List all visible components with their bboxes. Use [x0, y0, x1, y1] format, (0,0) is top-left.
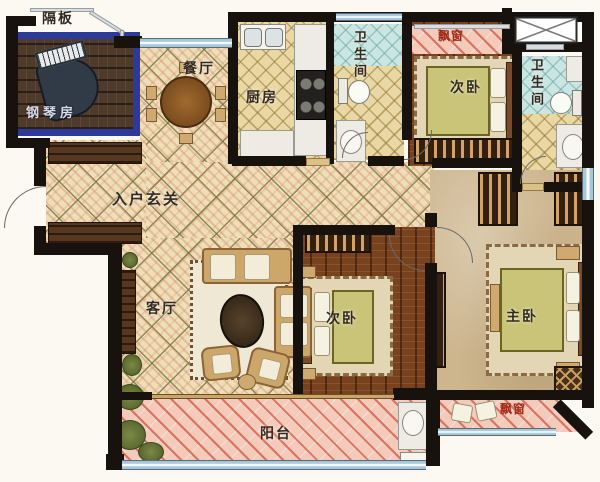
wall	[6, 16, 36, 26]
bay-window-sill	[438, 428, 556, 436]
master-bench	[490, 284, 500, 332]
bedroom1-bed-icon	[426, 66, 490, 136]
label-kitchen: 厨房	[246, 90, 278, 106]
label-balcony: 阳台	[260, 426, 292, 442]
wall	[582, 12, 594, 168]
wall	[393, 388, 429, 400]
doorway-threshold	[522, 183, 544, 191]
wall	[293, 225, 303, 398]
pillow-icon	[451, 402, 474, 423]
label-living-room: 客厅	[146, 301, 178, 317]
window	[582, 168, 594, 200]
label-bathroom-2: 卫生间	[527, 58, 542, 120]
stove-icon	[296, 70, 326, 120]
entry-cabinet-bottom	[48, 222, 142, 244]
wall	[368, 156, 404, 166]
dining-chair	[215, 86, 226, 100]
label-bathroom-1: 卫生间	[350, 30, 365, 96]
wall	[582, 200, 594, 408]
side-table	[238, 374, 256, 390]
wall	[6, 138, 50, 148]
label-bay-window-bottom: 飘窗	[500, 403, 526, 417]
sofa-cushion	[210, 254, 236, 280]
toilet-tank-icon	[338, 78, 348, 104]
label-bedroom-second-top: 次卧	[450, 80, 482, 96]
toilet-icon	[550, 92, 572, 114]
bath2-basin-icon	[562, 134, 584, 160]
window	[140, 38, 232, 48]
label-master-bedroom: 主卧	[506, 309, 538, 325]
toilet-tank-icon	[572, 90, 582, 116]
wall	[34, 148, 46, 186]
wall	[432, 158, 520, 168]
elevator-icon	[514, 16, 578, 44]
bath1-shower-tile	[334, 24, 404, 66]
wall	[326, 20, 334, 164]
plant-icon	[138, 442, 164, 462]
plant-icon	[122, 252, 138, 268]
wall	[426, 390, 586, 400]
label-entry-foyer: 入户玄关	[112, 191, 180, 208]
sofa-cushion	[244, 254, 270, 280]
armchair-icon	[200, 344, 241, 382]
balcony-window	[122, 460, 426, 470]
elevator-door	[526, 44, 564, 50]
wall	[228, 12, 238, 164]
armchair-cushion	[258, 357, 282, 381]
label-piano-room: 钢琴房	[26, 107, 77, 122]
floor-plan: 隔板 钢琴房 餐厅 厨房 卫生间 飘窗 次卧 卫生间 入户玄关 客厅 次卧 主卧…	[0, 0, 600, 482]
entry-door-arc	[4, 186, 46, 228]
label-partition: 隔板	[42, 11, 74, 27]
kitchen-sink-unit	[240, 24, 286, 50]
laundry-basin-icon	[402, 410, 424, 436]
sink-basin	[244, 28, 262, 47]
wall	[293, 225, 395, 235]
wall	[402, 12, 412, 140]
sink-basin	[265, 28, 283, 47]
tv-cabinet	[120, 270, 136, 354]
wall	[232, 156, 306, 166]
dining-chair	[179, 133, 193, 144]
wall	[120, 392, 152, 400]
armchair-cushion	[211, 353, 233, 375]
label-bedroom-second-mid: 次卧	[326, 311, 358, 327]
bedroom2-nightstand	[302, 368, 316, 380]
dining-chair	[146, 108, 157, 122]
wall	[425, 213, 437, 227]
sofa-icon	[202, 248, 292, 284]
master-nightstand	[556, 246, 580, 260]
entry-cabinet-top	[48, 142, 142, 164]
label-dining-room: 餐厅	[183, 61, 215, 77]
wall	[425, 263, 437, 398]
kitchen-lower-counter	[240, 130, 294, 158]
wall	[6, 16, 18, 148]
dining-chair	[215, 108, 226, 122]
plant-icon	[122, 354, 142, 376]
label-bay-window-top: 飘窗	[438, 30, 464, 44]
dining-table-icon	[160, 76, 212, 128]
pillow-icon	[490, 68, 506, 98]
wall	[108, 243, 122, 458]
window	[336, 13, 402, 21]
pillow-icon	[490, 102, 506, 132]
doorway-threshold	[306, 158, 330, 166]
wall	[512, 52, 522, 192]
bedroom2-nightstand	[302, 266, 316, 278]
pillow-icon	[314, 326, 330, 356]
sliding-door	[152, 394, 394, 399]
pillow-icon	[566, 310, 580, 342]
pillow-icon	[566, 272, 580, 304]
dining-chair	[146, 86, 157, 100]
